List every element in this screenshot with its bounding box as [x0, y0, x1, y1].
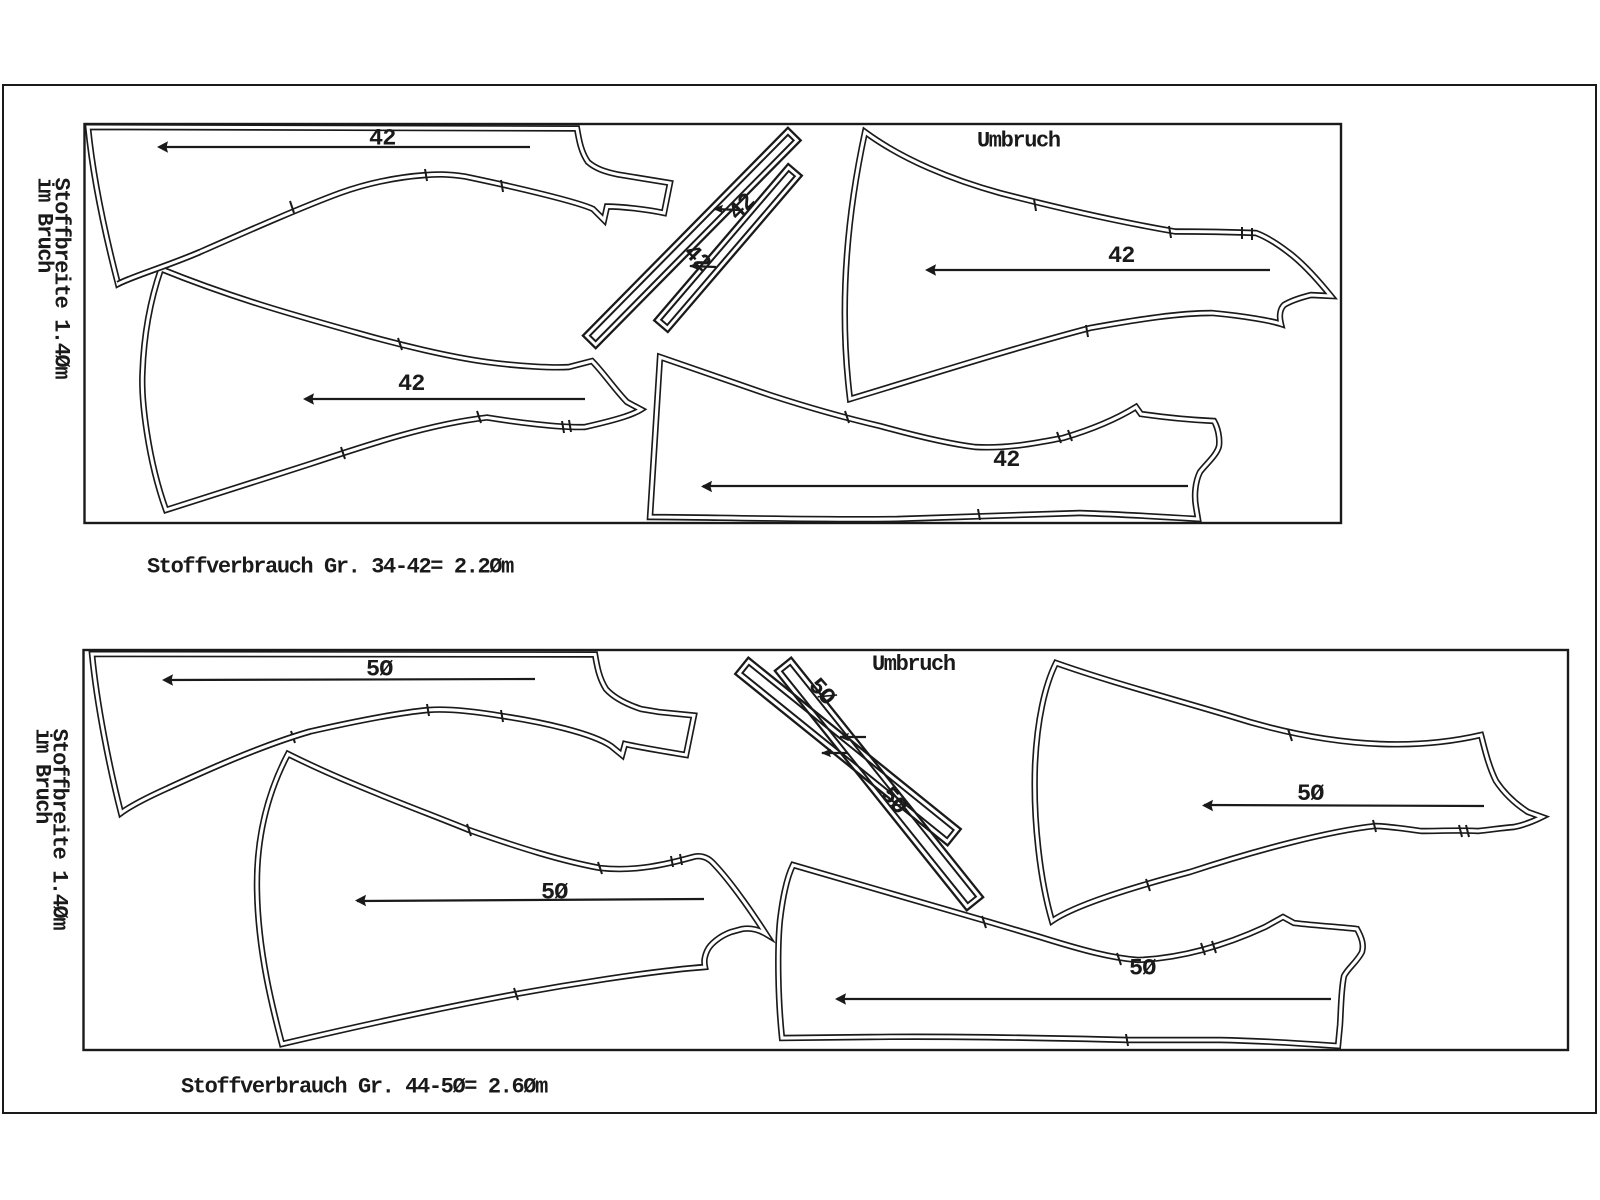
- svg-text:Stoffverbrauch Gr. 44-5Ø= 2.6Ø: Stoffverbrauch Gr. 44-5Ø= 2.6Øm: [181, 1075, 548, 1100]
- svg-text:Umbruch: Umbruch: [872, 652, 955, 677]
- svg-text:Stoffverbrauch Gr. 34-42= 2.2Ø: Stoffverbrauch Gr. 34-42= 2.2Øm: [147, 555, 514, 580]
- svg-text:42: 42: [1108, 243, 1135, 270]
- svg-text:5Ø: 5Ø: [1129, 956, 1156, 983]
- svg-text:42: 42: [993, 447, 1020, 474]
- svg-text:42: 42: [398, 371, 425, 398]
- svg-text:5Ø: 5Ø: [541, 880, 568, 907]
- svg-text:im Bruch: im Bruch: [32, 178, 57, 273]
- svg-text:5Ø: 5Ø: [366, 657, 393, 684]
- svg-text:42: 42: [369, 126, 396, 153]
- svg-text:im Bruch: im Bruch: [30, 729, 55, 824]
- svg-text:Umbruch: Umbruch: [977, 129, 1060, 154]
- svg-text:5Ø: 5Ø: [1297, 781, 1324, 808]
